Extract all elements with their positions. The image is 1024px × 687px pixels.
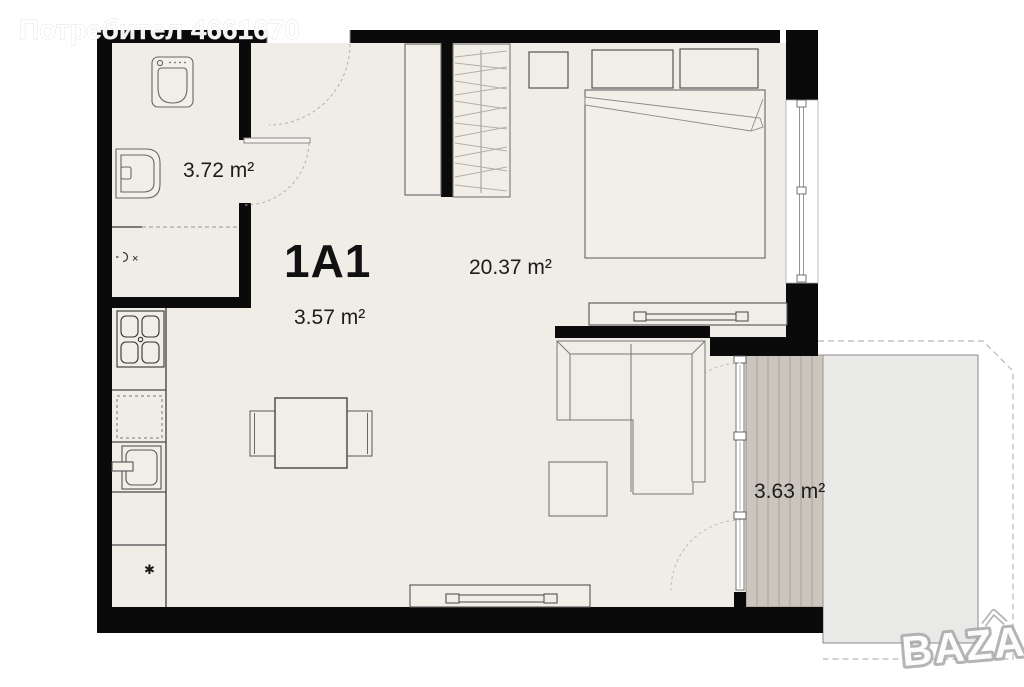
nightstand [529, 52, 568, 88]
floor-plan-svg: × ✱ [0, 0, 1024, 682]
terrace-slab [823, 355, 978, 643]
floor-plan-page: × ✱ [0, 0, 1024, 682]
bedroom-dresser [589, 303, 787, 325]
bottom-wall [97, 607, 823, 633]
tv-cabinet [410, 585, 590, 607]
unit-label: 1A1 [284, 235, 371, 287]
top-wall-mid [350, 30, 780, 43]
headboard-shelf-right [680, 49, 758, 88]
area-label-living: 20.37 m² [469, 256, 552, 279]
right-wall-upper [786, 43, 818, 101]
bathroom-wall-upper-stub [239, 43, 251, 140]
chair-left [250, 411, 276, 456]
hall-closet [405, 44, 441, 195]
watermark-text: Потребител 4661670 [19, 14, 300, 45]
left-wall [97, 30, 112, 633]
wardrobe-divider-wall [441, 43, 453, 197]
area-label-entry: 3.57 m² [294, 306, 365, 329]
bedroom-window [786, 100, 818, 283]
dining-table [275, 398, 347, 468]
area-label-terrace: 3.63 m² [754, 480, 825, 503]
wall-joint-notch [780, 30, 786, 43]
balcony-top-wall [710, 337, 818, 356]
chair-right [346, 411, 372, 456]
headboard-shelf-left [592, 50, 673, 88]
bed [585, 90, 765, 258]
area-label-bathroom: 3.72 m² [183, 159, 254, 182]
top-wall-right [786, 30, 818, 43]
ottoman [549, 462, 607, 516]
bathroom-bottom-wall [110, 297, 251, 308]
balcony-door-bottom-stub [734, 592, 746, 607]
wardrobe [453, 44, 510, 197]
toilet [152, 57, 193, 107]
stove [117, 311, 164, 367]
washer-cross-symbol: × [132, 253, 138, 265]
fridge-asterisk-symbol: ✱ [144, 562, 155, 577]
bathroom-sink [116, 149, 160, 198]
living-bedroom-wall [555, 326, 710, 338]
bathroom-wall-lower-stub [239, 203, 251, 303]
bathroom-door-leaf [244, 138, 310, 143]
